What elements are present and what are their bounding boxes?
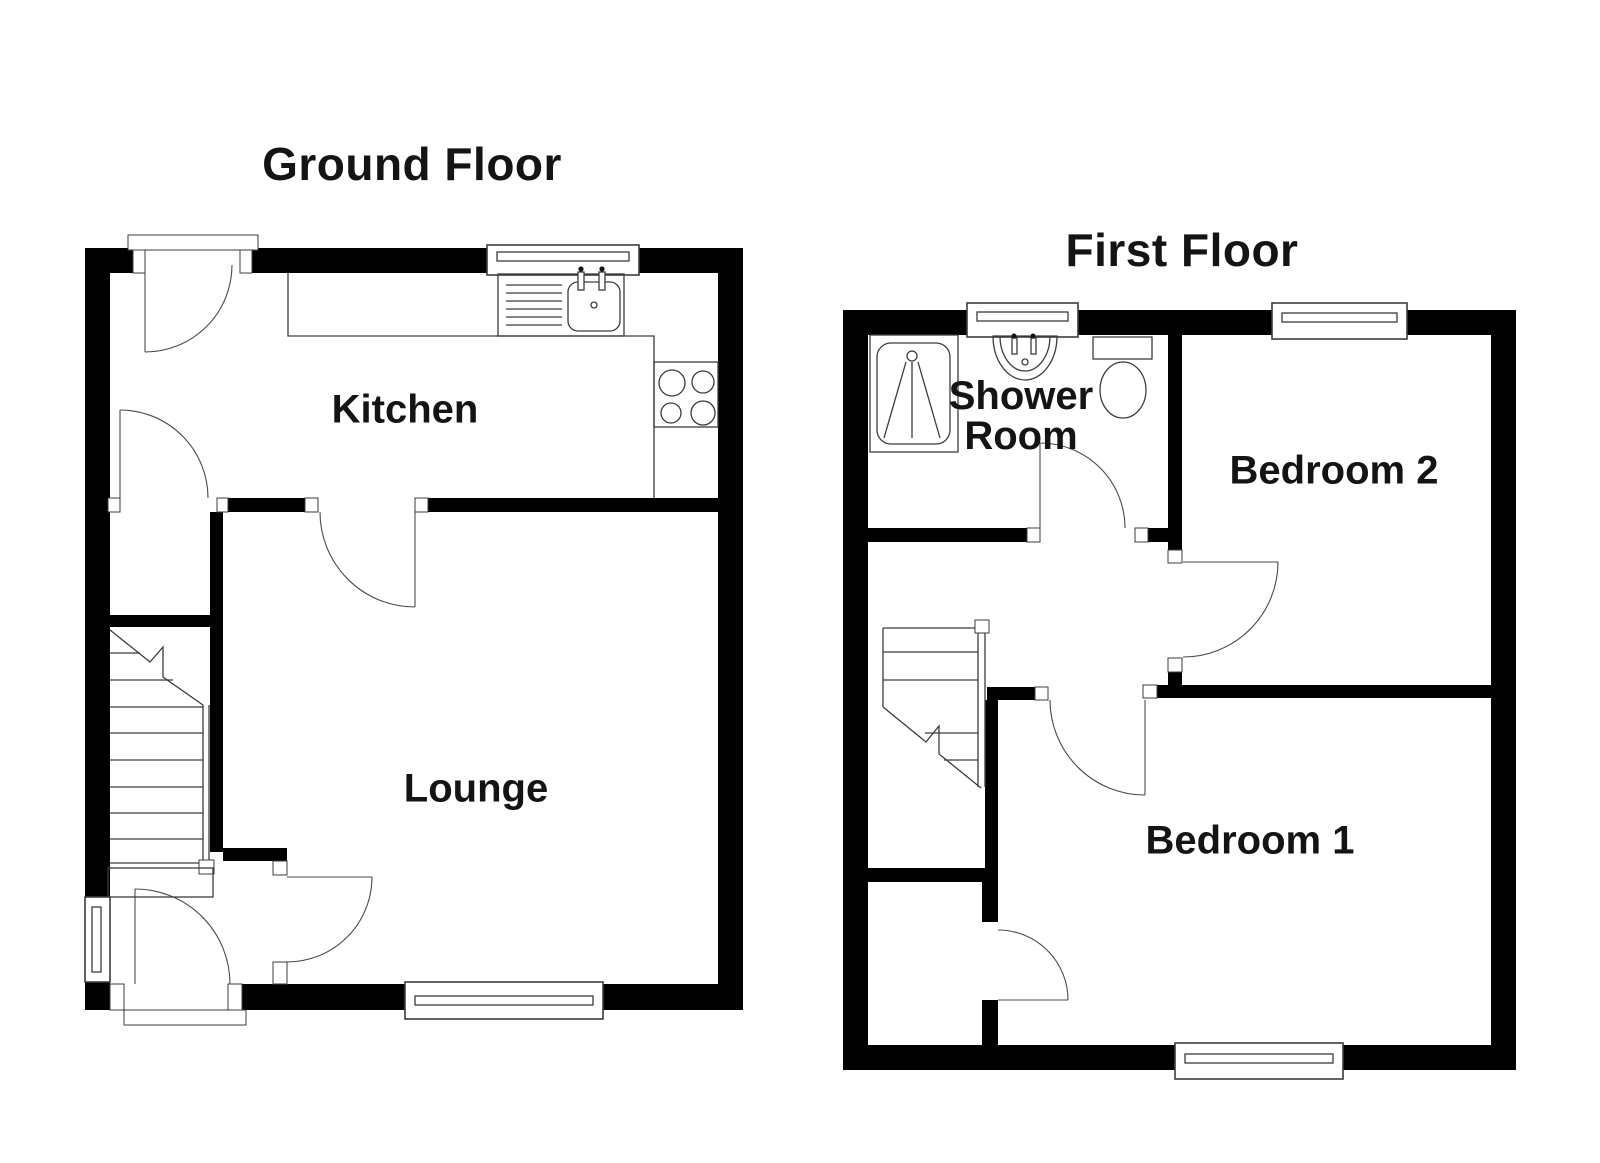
kitchen-window-icon [487, 245, 639, 275]
first-floor-title: First Floor [1066, 223, 1299, 277]
hall-cupboard-door-icon [120, 410, 208, 498]
room-label-shower-room: Shower Room [891, 376, 1151, 456]
room-label-bedroom2: Bedroom 2 [1230, 449, 1439, 494]
hob-icon [654, 362, 718, 427]
room-label-lounge: Lounge [404, 767, 548, 812]
ground-floor-title: Ground Floor [262, 137, 562, 191]
lounge-window-icon [405, 982, 603, 1019]
ground-floor-plan [85, 235, 743, 1025]
ground-door-jambs [108, 235, 428, 1025]
floorplan-drawing [0, 0, 1600, 1163]
ground-staircase-icon [108, 630, 214, 897]
kitchen-sink-icon [498, 266, 624, 336]
first-door-jambs [1027, 528, 1182, 700]
bedroom1-door-icon [1050, 700, 1145, 795]
room-label-shower-line2: Room [891, 416, 1151, 456]
kitchen-counter-icon [288, 273, 654, 498]
side-panel-window-icon [85, 897, 110, 982]
room-label-shower-line1: Shower [891, 376, 1151, 416]
bedroom1-window-icon [1175, 1043, 1343, 1079]
bedroom2-window-icon [1272, 303, 1407, 339]
ground-exterior-walls [85, 248, 743, 1010]
room-label-bedroom1: Bedroom 1 [1146, 819, 1355, 864]
entrance-door-icon [135, 889, 230, 984]
first-cupboard-door-icon [998, 930, 1068, 1000]
kitchen-lounge-door-icon [320, 512, 415, 607]
hall-lounge-door-icon [287, 877, 372, 962]
front-door-icon [145, 265, 232, 352]
shower-room-window-icon [967, 303, 1078, 337]
floorplan-page: Ground Floor First Floor Kitchen Lounge … [0, 0, 1600, 1163]
room-label-kitchen: Kitchen [332, 388, 479, 433]
first-staircase-icon [883, 620, 989, 788]
bedroom2-door-icon [1183, 562, 1278, 657]
